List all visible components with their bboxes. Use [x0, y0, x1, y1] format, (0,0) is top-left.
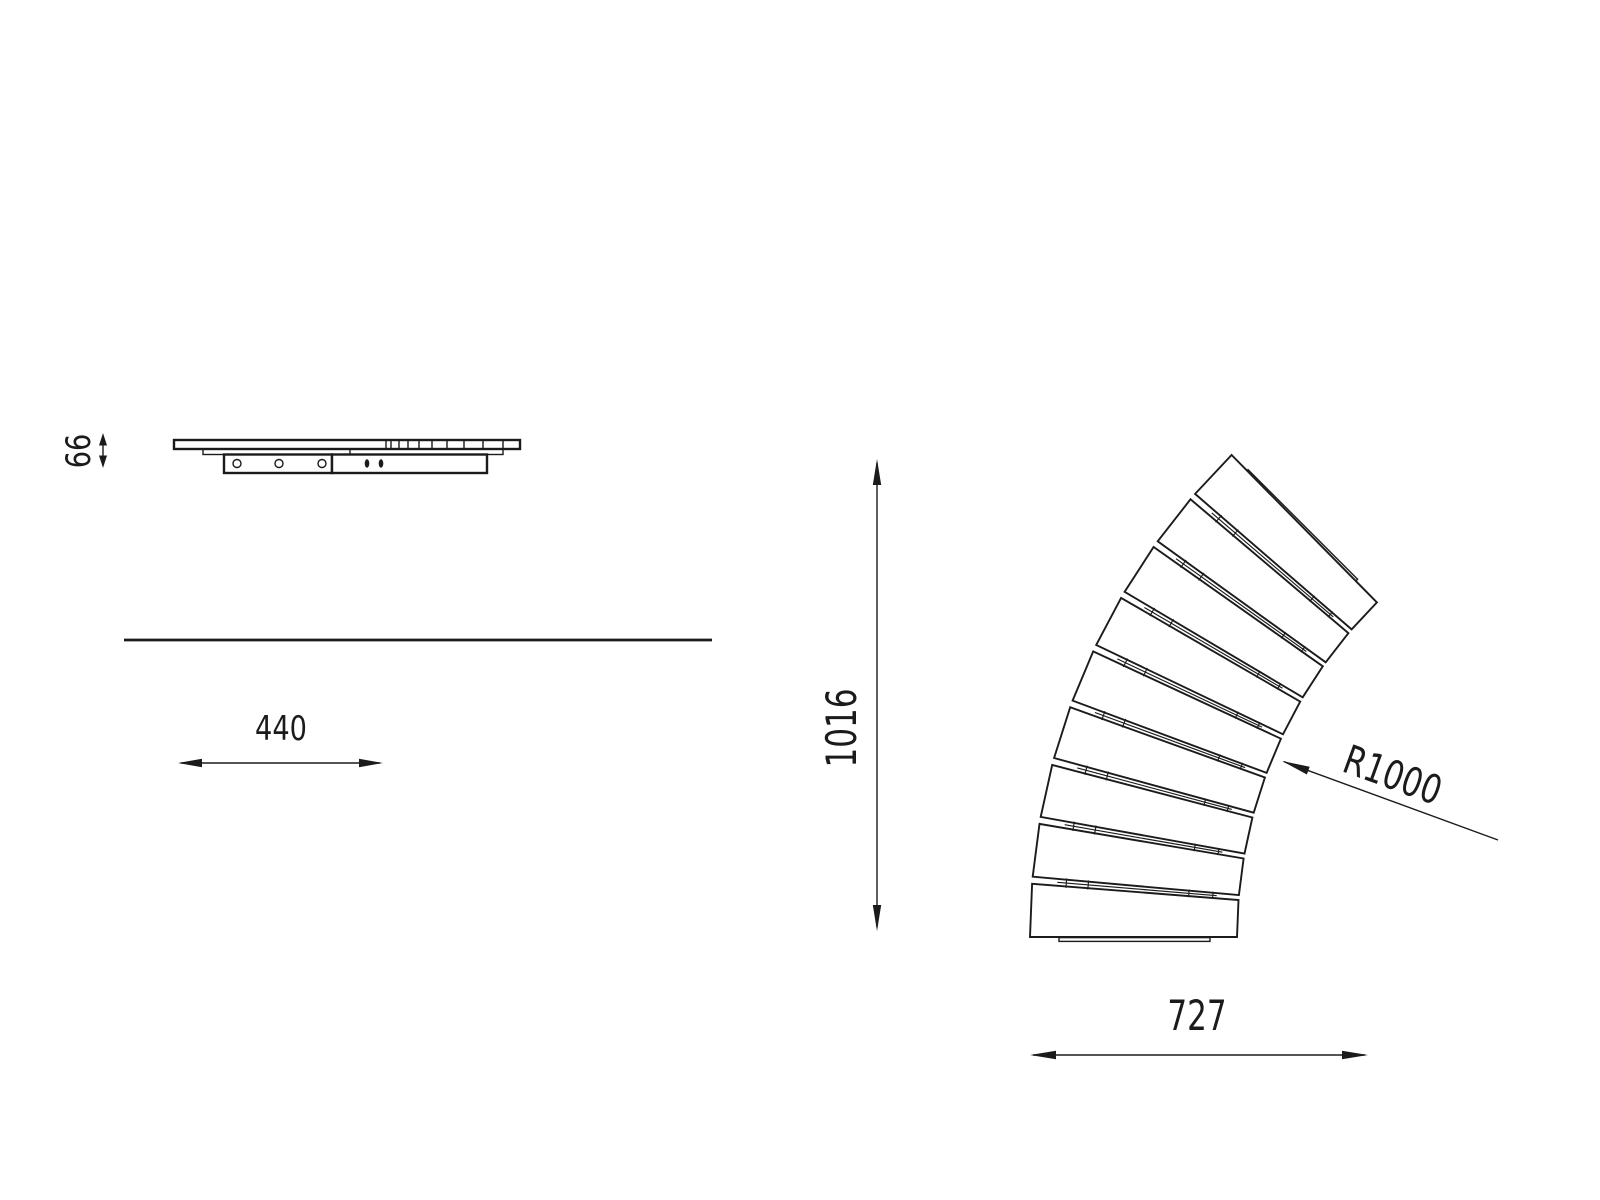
slot-hole: [379, 459, 384, 467]
arrowhead-down: [99, 456, 107, 469]
dim-727-label: 727: [1167, 991, 1226, 1040]
arrowhead-left: [1030, 1051, 1056, 1059]
dim-r1000: R1000: [1282, 737, 1498, 840]
dim-1016: 1016: [817, 459, 881, 931]
dim-727: 727: [1030, 991, 1368, 1059]
dim-66: 66: [59, 433, 107, 468]
dim-1016-label: 1016: [817, 688, 866, 767]
bracket-left: [224, 455, 332, 474]
plan-view-slats: [1030, 455, 1377, 937]
side-elevation-view: [174, 440, 520, 473]
dim-r1000-label: R1000: [1337, 737, 1448, 815]
arrowhead-down: [873, 905, 881, 931]
arrowhead-up: [873, 459, 881, 485]
bracket-right: [332, 455, 487, 474]
seat-plate-side: [174, 440, 520, 449]
arrowhead-right: [359, 759, 383, 767]
plan-view: [1030, 455, 1377, 941]
technical-drawing: 66 440 1016 727 R1000: [0, 0, 1600, 1200]
slot-hole: [365, 459, 370, 467]
base-strip: [1059, 938, 1210, 942]
drawing-sheet: 66 440 1016 727 R1000: [0, 0, 1600, 1200]
arrowhead-left: [178, 759, 202, 767]
arrowhead-right: [1342, 1051, 1368, 1059]
dim-440-label: 440: [255, 709, 307, 749]
arrowhead-up: [99, 433, 107, 446]
dim-440: 440: [178, 709, 383, 767]
arrowhead-radius: [1282, 761, 1310, 775]
dim-66-label: 66: [59, 434, 99, 469]
